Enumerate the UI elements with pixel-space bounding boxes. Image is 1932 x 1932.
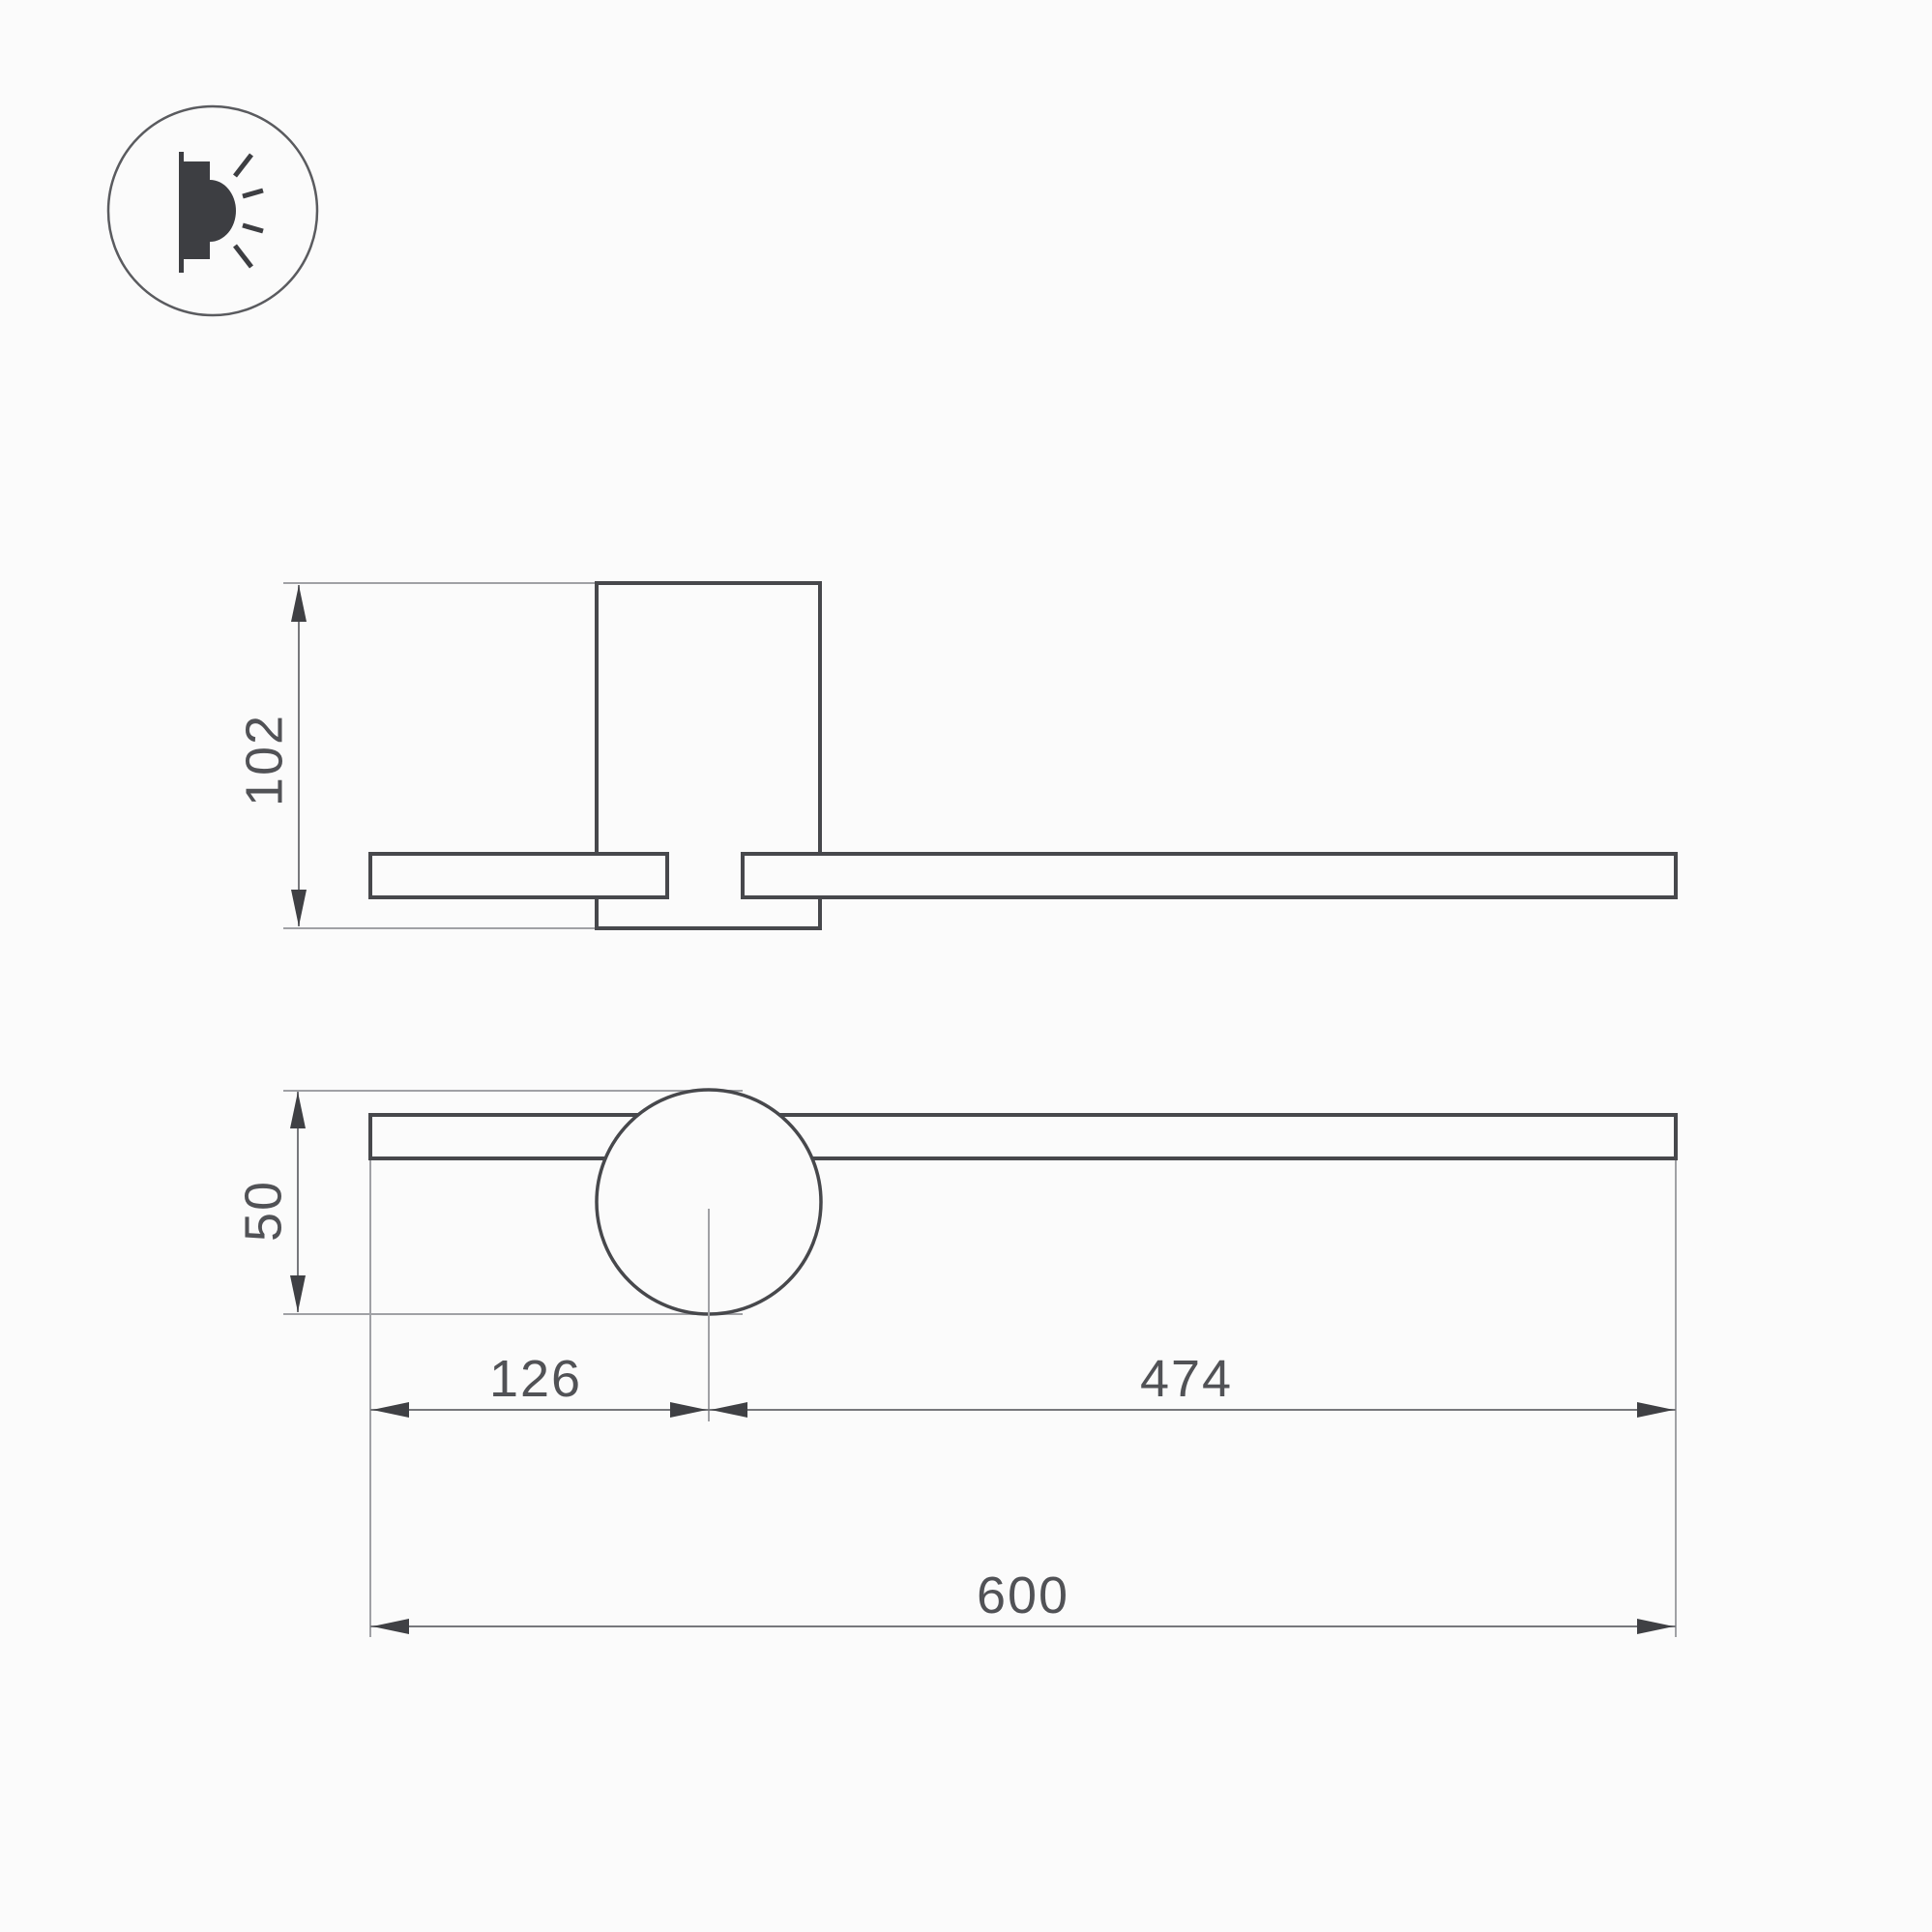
- technical-drawing: 102 50 126 474 600: [0, 0, 1932, 1932]
- icon-lamp-body: [184, 161, 210, 259]
- icon-ray-4: [235, 246, 251, 267]
- arrow-left-126: [372, 1402, 409, 1418]
- wall-light-emission-icon: [108, 106, 317, 315]
- arrow-right-126: [670, 1402, 707, 1418]
- arrow-left-474: [711, 1402, 747, 1418]
- right-arm: [743, 854, 1676, 897]
- dim-text-474: 474: [1140, 1350, 1233, 1408]
- arrow-right-600: [1637, 1619, 1674, 1634]
- icon-light-halfdome: [210, 180, 236, 242]
- icon-ray-1: [235, 155, 251, 176]
- arrow-down-50: [290, 1275, 306, 1312]
- side-view: 102: [235, 583, 1676, 928]
- arrow-up-102: [291, 585, 307, 622]
- dim-text-50: 50: [234, 1180, 292, 1242]
- icon-ray-3: [243, 225, 263, 231]
- dim-text-600: 600: [977, 1566, 1069, 1625]
- dim-text-126: 126: [489, 1350, 582, 1408]
- arrow-right-474: [1637, 1402, 1674, 1418]
- arrow-left-600: [372, 1619, 409, 1634]
- lamp-tube: [370, 1115, 1676, 1158]
- dim-text-102: 102: [235, 714, 293, 806]
- front-view: 50 126 474 600: [234, 1090, 1676, 1637]
- icon-wall-line: [179, 152, 184, 273]
- icon-ray-2: [243, 190, 263, 196]
- left-arm: [370, 854, 667, 897]
- arrow-down-102: [291, 890, 307, 926]
- arrow-up-50: [290, 1092, 306, 1128]
